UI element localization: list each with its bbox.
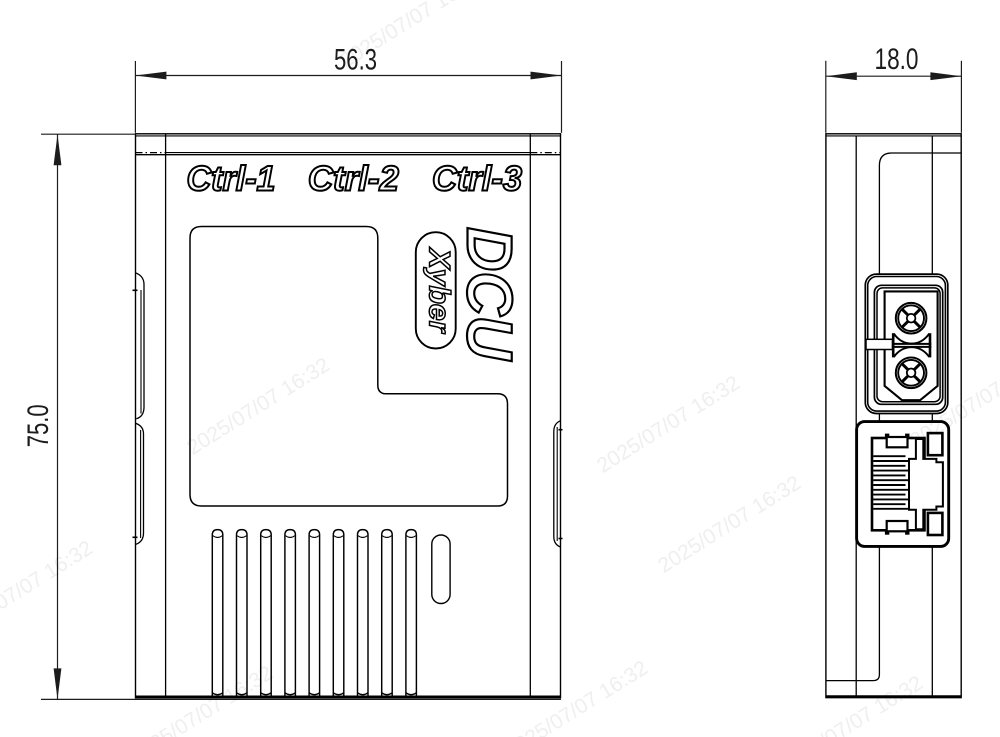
svg-text:Xyber: Xyber xyxy=(423,246,456,334)
svg-text:56.3: 56.3 xyxy=(334,43,377,76)
svg-text:Ctrl-3: Ctrl-3 xyxy=(432,160,523,199)
svg-text:Ctrl-2: Ctrl-2 xyxy=(308,160,400,199)
svg-text:75.0: 75.0 xyxy=(22,404,55,447)
svg-text:DCU: DCU xyxy=(454,227,526,362)
svg-text:Ctrl-1: Ctrl-1 xyxy=(187,160,276,199)
svg-text:18.0: 18.0 xyxy=(875,43,919,76)
